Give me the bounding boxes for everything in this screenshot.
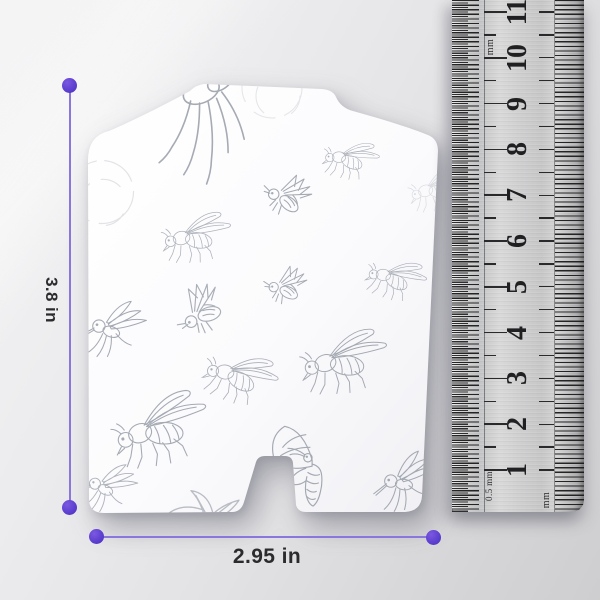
ruler-tick (484, 217, 496, 218)
ruler-tick (539, 355, 554, 356)
ruler-tick (539, 286, 554, 287)
height-dimension-line (69, 92, 71, 501)
ruler-tick (539, 34, 554, 35)
ruler-tick (484, 172, 496, 173)
ruler-number: 7 (498, 175, 538, 215)
metal-ruler: 1234567891011 mm 0.5 mm mm (452, 0, 584, 512)
ruler-tick (539, 80, 554, 81)
ruler-tick (539, 11, 554, 12)
ruler-mm-band-right (554, 0, 584, 512)
ruler-number: 4 (498, 313, 538, 353)
dimension-endpoint-dot (89, 529, 104, 544)
ruler-tick (484, 80, 496, 81)
dimension-endpoint-dot (62, 500, 77, 515)
ruler-number: 2 (498, 404, 538, 444)
width-dimension-line (103, 536, 428, 538)
ruler-tick (539, 424, 554, 425)
ruler-mm-band-left (452, 0, 485, 512)
ruler-number: 9 (498, 84, 538, 124)
dimension-endpoint-dot (62, 78, 77, 93)
width-dimension-label: 2.95 in (187, 544, 347, 570)
ruler-tick (539, 172, 554, 173)
ruler-unit-label: mm (476, 33, 504, 61)
ruler-number: 8 (498, 129, 538, 169)
ruler-unit-label: 0.5 mm (469, 469, 509, 503)
ruler-tick (539, 469, 554, 470)
ruler-tick (539, 332, 554, 333)
ruler-tick (539, 263, 554, 264)
ruler-tick (484, 126, 496, 127)
ruler-unit-label: mm (532, 486, 560, 514)
ruler-tick (539, 149, 554, 150)
ruler-tick (539, 401, 554, 402)
ruler-number: 10 (498, 38, 538, 78)
ruler-tick (539, 378, 554, 379)
dimension-endpoint-dot (426, 530, 441, 545)
ruler-tick (484, 309, 496, 310)
ruler-tick (539, 309, 554, 310)
ruler-number: 6 (498, 221, 538, 261)
ruler-tick (484, 446, 496, 447)
ruler-number: 11 (498, 0, 538, 32)
ruler-tick (539, 57, 554, 58)
ruler-tick (484, 401, 496, 402)
height-dimension-label: 3.8 in (39, 263, 63, 337)
ruler-tick (539, 103, 554, 104)
ruler-tick (539, 126, 554, 127)
ruler-tick (484, 355, 496, 356)
ruler-tick (539, 195, 554, 196)
ruler-number: 5 (498, 267, 538, 307)
ruler-tick (539, 217, 554, 218)
product-dimension-image: 3.8 in 2.95 in 1234567891011 mm 0.5 mm m… (0, 0, 600, 600)
ruler-tick (539, 446, 554, 447)
glue-board-card (88, 84, 438, 513)
ruler-tick (539, 240, 554, 241)
ruler-number: 3 (498, 358, 538, 398)
ruler-tick (484, 263, 496, 264)
